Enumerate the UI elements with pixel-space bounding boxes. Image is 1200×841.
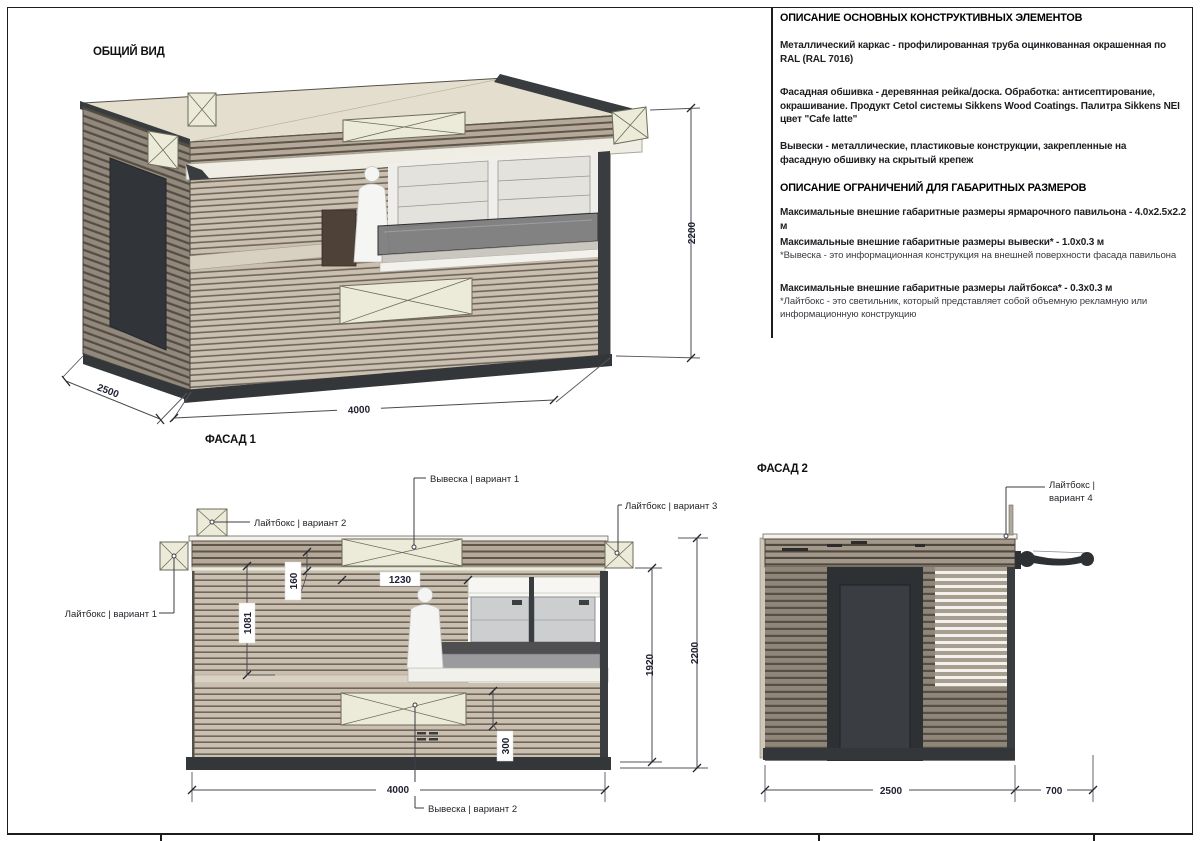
- svg-text:Лайтбокс | вариант 2: Лайтбокс | вариант 2: [254, 518, 346, 529]
- specs-heading-2: ОПИСАНИЕ ОГРАНИЧЕНИЙ ДЛЯ ГАБАРИТНЫХ РАЗМ…: [780, 182, 1186, 195]
- drawing-sheet: ОПИСАНИЕ ОСНОВНЫХ КОНСТРУКТИВНЫХ ЭЛЕМЕНТ…: [0, 0, 1200, 841]
- facade2-building: [760, 505, 1094, 761]
- facade1-base: [186, 757, 611, 770]
- svg-text:Вывеска | вариант 2: Вывеска | вариант 2: [428, 804, 517, 815]
- facade2-awning-arm: [1009, 505, 1094, 569]
- specs-para-signs: Вывески - металлические, пластиковые кон…: [780, 140, 1176, 167]
- facade2-dim-700: 700: [1015, 755, 1097, 802]
- svg-text:4000: 4000: [387, 785, 410, 796]
- specs-para-sign-size: Максимальные внешние габаритные размеры …: [780, 236, 1186, 250]
- specs-para-lightbox-size: Максимальные внешние габаритные размеры …: [780, 282, 1186, 296]
- lightbox-right-end: [612, 107, 648, 144]
- specs-note-sign: *Вывеска - это информационная конструкци…: [780, 249, 1186, 262]
- title-block-top-line: [7, 833, 1192, 835]
- lightbox-roof: [188, 93, 216, 126]
- svg-text:300: 300: [501, 737, 512, 754]
- facade1-dim-1920: 1920: [620, 564, 662, 766]
- title-block-divider-1: [160, 834, 162, 841]
- svg-text:Лайтбокс |: Лайтбокс |: [1049, 480, 1095, 491]
- specs-para-cladding: Фасадная обшивка - деревянная рейка/доск…: [780, 86, 1184, 127]
- title-block-divider-3: [1093, 834, 1095, 841]
- svg-text:2200: 2200: [687, 221, 698, 244]
- specs-column-divider: [771, 8, 773, 338]
- lightbox-corner: [148, 131, 178, 169]
- facade1-lightbox-v1: Лайтбокс | вариант 1: [65, 542, 188, 620]
- specs-note-lightbox: *Лайтбокс - это светильник, который пред…: [780, 295, 1182, 321]
- facade1-dim-2200: 2200: [620, 534, 708, 772]
- facade1-title: ФАСАД 1: [205, 434, 256, 446]
- title-block-divider-2: [818, 834, 820, 841]
- svg-text:700: 700: [1046, 786, 1063, 797]
- facade1-sign-panel-top: [342, 539, 462, 566]
- facade2-drawing: Лайтбокс | вариант 4 2500 700: [745, 455, 1125, 825]
- facade1-sign-panel-lower: [341, 693, 466, 725]
- specs-heading-1: ОПИСАНИЕ ОСНОВНЫХ КОНСТРУКТИВНЫХ ЭЛЕМЕНТ…: [780, 12, 1186, 25]
- svg-text:1920: 1920: [645, 653, 656, 676]
- general-view-title: ОБЩИЙ ВИД: [93, 46, 165, 58]
- svg-text:1081: 1081: [243, 611, 254, 634]
- svg-text:4000: 4000: [348, 404, 371, 416]
- facade2-door: [827, 567, 923, 761]
- svg-text:2500: 2500: [880, 786, 903, 797]
- specs-para-pavilion-size: Максимальные внешние габаритные размеры …: [780, 206, 1186, 233]
- facade1-lightbox-v2: Лайтбокс | вариант 2: [197, 509, 346, 536]
- facade2-open-slats: [935, 567, 1007, 687]
- facade1-drawing: Лайтбокс | вариант 2 Лайтбокс | вариант …: [60, 455, 720, 825]
- svg-text:вариант 4: вариант 4: [1049, 493, 1093, 504]
- svg-text:Лайтбокс | вариант 1: Лайтбокс | вариант 1: [65, 609, 157, 620]
- svg-text:Вывеска | вариант 1: Вывеска | вариант 1: [430, 474, 519, 485]
- kiosk-front-face: [184, 151, 612, 403]
- svg-text:2200: 2200: [690, 641, 701, 664]
- svg-text:Лайтбокс | вариант 3: Лайтбокс | вариант 3: [625, 501, 717, 512]
- svg-text:1230: 1230: [389, 575, 412, 586]
- svg-text:160: 160: [289, 572, 300, 589]
- facade1-building: [186, 536, 611, 770]
- specs-para-frame: Металлический каркас - профилированная т…: [780, 39, 1180, 66]
- facade2-dim-2500: 2500: [761, 765, 1019, 802]
- chair: [322, 210, 356, 266]
- facade2-lightbox-v4-callout: Лайтбокс | вариант 4: [1004, 480, 1095, 538]
- facade1-dim-4000: 4000: [188, 772, 609, 802]
- general-view-drawing: 2200 2500 4000: [50, 60, 730, 445]
- facade2-base: [763, 748, 1015, 760]
